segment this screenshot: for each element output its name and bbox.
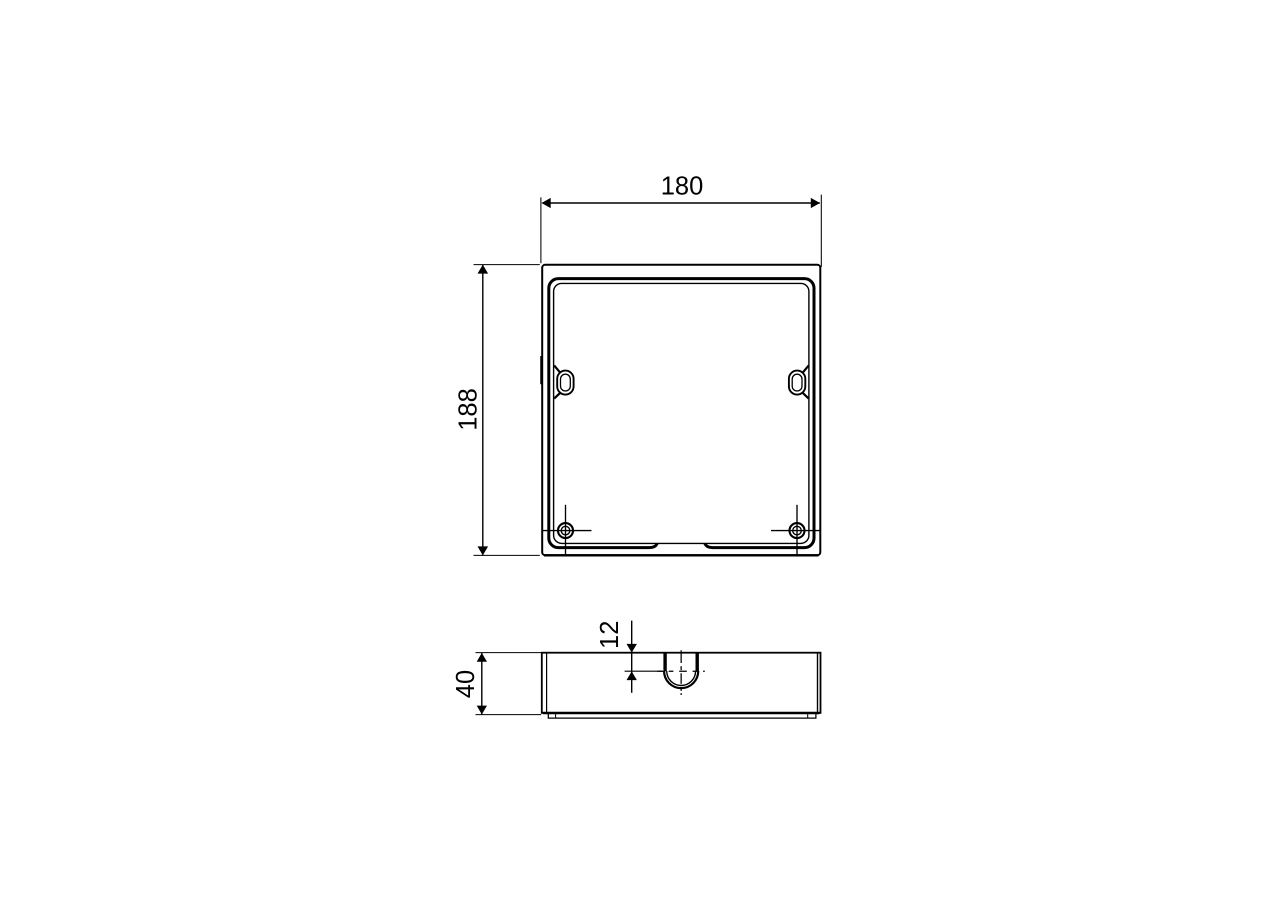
svg-text:12: 12 [596,621,624,649]
svg-text:40: 40 [452,670,480,698]
svg-text:180: 180 [661,173,704,201]
svg-text:188: 188 [454,388,482,431]
